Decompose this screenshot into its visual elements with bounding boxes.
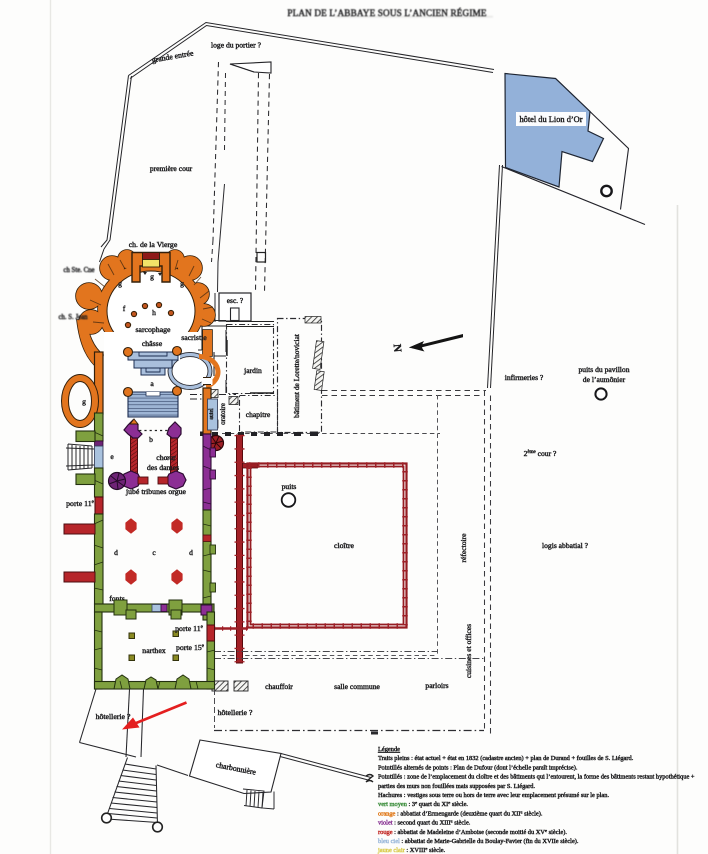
svg-text:cuisines et offices: cuisines et offices — [464, 624, 473, 678]
svg-text:des dames: des dames — [147, 463, 179, 472]
svg-text:N: N — [391, 344, 404, 353]
svg-text:cloître: cloître — [334, 541, 354, 550]
svg-text:narthex: narthex — [142, 646, 165, 655]
svg-text:orange : abbatiat d’Ermengarde: orange : abbatiat d’Ermengarde (deuxième… — [378, 809, 543, 818]
svg-text:logis abbatial ?: logis abbatial ? — [542, 541, 589, 550]
svg-text:bleu ciel : abbatiat de Marie-: bleu ciel : abbatiat de Marie-Gabrielle … — [378, 838, 579, 845]
svg-text:oratoire: oratoire — [219, 403, 227, 425]
svg-text:g: g — [118, 279, 122, 288]
svg-text:autel: autel — [209, 408, 215, 420]
svg-text:violet : second quart du XIIIe: violet : second quart du XIIIe siècle. — [378, 818, 471, 827]
svg-text:Traits pleins : état actuel +: Traits pleins : état actuel + état en 18… — [378, 755, 634, 762]
svg-text:Pointillés alternés de points: Pointillés alternés de points : Plan de … — [378, 764, 578, 771]
svg-text:g: g — [82, 397, 86, 406]
svg-text:ch Ste. Cne: ch Ste. Cne — [63, 267, 94, 274]
svg-text:loge du portier ?: loge du portier ? — [211, 41, 262, 50]
svg-text:hôtel du Lion d’Or: hôtel du Lion d’Or — [519, 115, 582, 124]
svg-text:b: b — [149, 435, 153, 444]
svg-text:porte 11e: porte 11e — [66, 499, 94, 508]
svg-text:de l’aumônier: de l’aumônier — [583, 375, 626, 384]
svg-text:porte 11e: porte 11e — [175, 624, 203, 633]
svg-text:sarcophage: sarcophage — [135, 325, 171, 334]
svg-text:rouge : abbatiat de Madeleine: rouge : abbatiat de Madeleine d’Amboise … — [378, 827, 567, 836]
svg-text:vert moyen : 3e quart du XIe s: vert moyen : 3e quart du XIe siècle. — [378, 800, 468, 809]
svg-text:Légende: Légende — [378, 746, 400, 753]
svg-text:ch. de la Vierge: ch. de la Vierge — [129, 240, 178, 249]
svg-text:bâtiment de Lorette/noviciat: bâtiment de Lorette/noviciat — [292, 333, 301, 418]
svg-text:puits du pavillon: puits du pavillon — [578, 365, 629, 374]
svg-text:sacristie: sacristie — [181, 333, 207, 342]
svg-text:Hachures : vestiges sous terre: Hachures : vestiges sous terre ou hors d… — [378, 792, 609, 799]
svg-text:d: d — [114, 548, 118, 557]
svg-text:jubé tribunes orgue: jubé tribunes orgue — [125, 487, 187, 496]
svg-text:chœur: chœur — [156, 453, 176, 462]
svg-text:d: d — [189, 548, 193, 557]
svg-text:hôtellerie ?: hôtellerie ? — [218, 708, 253, 717]
svg-text:châsse: châsse — [142, 339, 163, 348]
svg-text:parloirs: parloirs — [425, 681, 448, 690]
svg-text:jardin: jardin — [243, 366, 262, 375]
svg-text:infirmeries ?: infirmeries ? — [505, 373, 544, 382]
svg-text:réfectoire: réfectoire — [459, 533, 468, 563]
svg-text:Pointillés : zone de l’emplace: Pointillés : zone de l’emplacement du cl… — [378, 774, 695, 781]
svg-text:chauffoir: chauffoir — [265, 682, 293, 691]
svg-text:hôtellerie ?: hôtellerie ? — [96, 712, 131, 721]
svg-text:jaune clair : XVIIIe siècle.: jaune clair : XVIIIe siècle. — [377, 846, 446, 854]
svg-text:g: g — [150, 272, 154, 281]
svg-text:puits: puits — [282, 482, 297, 491]
svg-text:chapitre: chapitre — [246, 410, 271, 419]
svg-text:première cour: première cour — [150, 164, 193, 173]
svg-text:g: g — [180, 279, 184, 288]
svg-text:porte 15e: porte 15e — [176, 643, 205, 652]
svg-text:salle commune: salle commune — [334, 682, 380, 691]
svg-text:parties des murs non fouillées: parties des murs non fouillées mais supp… — [378, 783, 535, 790]
svg-text:h: h — [152, 308, 156, 317]
svg-text:ch. S. Jean: ch. S. Jean — [58, 314, 88, 321]
svg-text:esc. ?: esc. ? — [227, 296, 243, 305]
